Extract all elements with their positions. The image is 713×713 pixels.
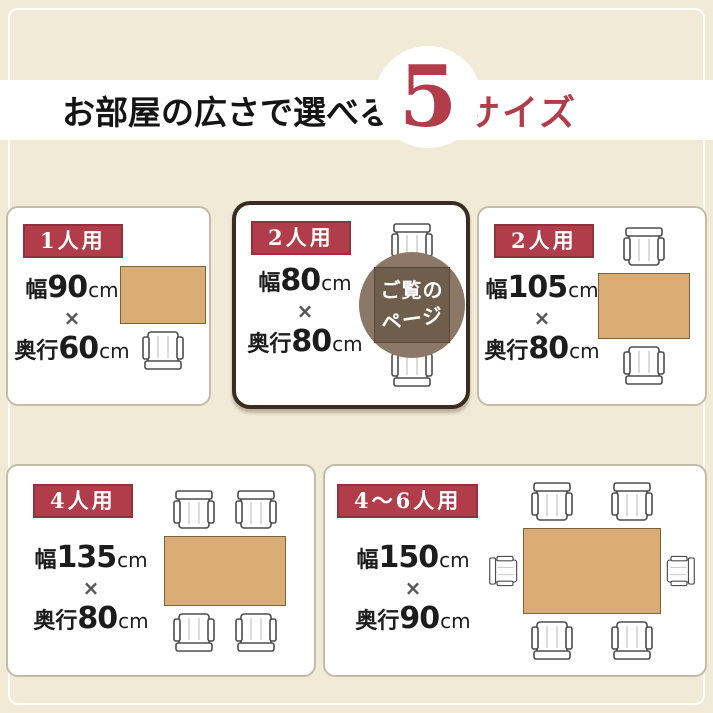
title-number-wrap: 5 bbox=[400, 68, 456, 152]
table-top-icon bbox=[523, 528, 661, 614]
depth-label: 奥行 bbox=[14, 333, 58, 365]
width-value: 80 bbox=[280, 263, 320, 298]
size-card-4to6person: 4〜6人用 幅150cm × 奥行90cm bbox=[323, 464, 707, 677]
depth-value: 60 bbox=[58, 331, 98, 366]
width-label: 幅 bbox=[258, 265, 280, 297]
chair-icon bbox=[141, 326, 185, 370]
width-value: 150 bbox=[378, 540, 438, 575]
chair-icon bbox=[657, 555, 701, 587]
chair-icon bbox=[530, 616, 574, 660]
depth-line: 奥行90cm bbox=[337, 601, 489, 636]
depth-value: 80 bbox=[291, 324, 331, 359]
current-page-line2: ページ bbox=[379, 301, 445, 338]
size-badge: 4人用 bbox=[33, 484, 133, 518]
chair-icon bbox=[172, 490, 216, 534]
unit-label: cm bbox=[117, 548, 147, 572]
width-line: 幅135cm bbox=[18, 540, 164, 575]
chair-icon bbox=[622, 341, 666, 385]
size-guide-banner: お部屋の広さで選べる 5 サイズ 1人用 幅90cm × 奥行60cm 2人用 bbox=[0, 0, 713, 713]
unit-label: cm bbox=[440, 609, 470, 633]
unit-label: cm bbox=[118, 609, 148, 633]
current-page-line1: ご覧の bbox=[381, 276, 444, 305]
page-title: お部屋の広さで選べる 5 サイズ bbox=[0, 80, 676, 140]
title-main-text: お部屋の広さで選べる bbox=[62, 86, 392, 134]
current-page-marker: ご覧の ページ bbox=[359, 252, 465, 358]
size-badge: 2人用 bbox=[494, 224, 594, 258]
title-number: 5 bbox=[399, 55, 457, 139]
depth-label: 奥行 bbox=[355, 603, 399, 635]
chair-icon bbox=[234, 608, 278, 652]
width-line: 幅90cm bbox=[12, 270, 132, 305]
chair-icon bbox=[530, 482, 574, 526]
width-value: 135 bbox=[56, 540, 116, 575]
chair-icon bbox=[610, 616, 654, 660]
depth-line: 奥行80cm bbox=[18, 601, 164, 636]
width-label: 幅 bbox=[34, 542, 56, 574]
depth-value: 90 bbox=[399, 601, 439, 636]
width-label: 幅 bbox=[485, 272, 507, 304]
depth-line: 奥行80cm bbox=[244, 324, 366, 359]
dimensions: 幅80cm × 奥行80cm bbox=[244, 263, 366, 359]
width-value: 105 bbox=[507, 270, 567, 305]
times-symbol: × bbox=[18, 576, 164, 600]
times-symbol: × bbox=[12, 306, 132, 330]
dimensions: 幅105cm × 奥行80cm bbox=[479, 270, 605, 366]
depth-value: 80 bbox=[77, 601, 117, 636]
layout-diagram: ご覧の ページ bbox=[366, 205, 458, 405]
chair-icon bbox=[483, 555, 527, 587]
width-line: 幅150cm bbox=[337, 540, 489, 575]
depth-line: 奥行80cm bbox=[479, 331, 605, 366]
table-top-icon bbox=[598, 273, 690, 339]
dimensions: 幅90cm × 奥行60cm bbox=[12, 270, 132, 366]
table-top-icon bbox=[120, 266, 206, 324]
depth-value: 80 bbox=[528, 331, 568, 366]
times-symbol: × bbox=[244, 299, 366, 323]
size-badge: 2人用 bbox=[251, 221, 351, 255]
table-top-icon bbox=[164, 536, 286, 606]
title-suffix-text: サイズ bbox=[464, 84, 577, 136]
layout-diagram bbox=[487, 466, 697, 675]
width-label: 幅 bbox=[25, 272, 47, 304]
chair-icon bbox=[234, 490, 278, 534]
depth-label: 奥行 bbox=[247, 326, 291, 358]
title-band: お部屋の広さで選べる 5 サイズ bbox=[0, 80, 713, 140]
unit-label: cm bbox=[321, 271, 351, 295]
size-card-4person: 4人用 幅135cm × 奥行80cm bbox=[6, 464, 316, 677]
size-badge: 1人用 bbox=[23, 224, 123, 258]
chair-icon bbox=[622, 227, 666, 271]
layout-diagram bbox=[148, 466, 302, 675]
layout-diagram bbox=[123, 208, 203, 404]
size-card-2person-current: 2人用 幅80cm × 奥行80cm ご覧の ページ bbox=[232, 201, 470, 409]
width-value: 90 bbox=[47, 270, 87, 305]
unit-label: cm bbox=[439, 548, 469, 572]
dimensions: 幅135cm × 奥行80cm bbox=[18, 540, 164, 636]
size-card-1person: 1人用 幅90cm × 奥行60cm bbox=[6, 206, 211, 406]
width-line: 幅105cm bbox=[479, 270, 605, 305]
unit-label: cm bbox=[88, 278, 118, 302]
depth-label: 奥行 bbox=[33, 603, 77, 635]
depth-label: 奥行 bbox=[484, 333, 528, 365]
size-card-2person-wide: 2人用 幅105cm × 奥行80cm bbox=[477, 206, 707, 406]
times-symbol: × bbox=[337, 576, 489, 600]
width-label: 幅 bbox=[356, 542, 378, 574]
width-line: 幅80cm bbox=[244, 263, 366, 298]
depth-line: 奥行60cm bbox=[12, 331, 132, 366]
unit-label: cm bbox=[332, 332, 362, 356]
dimensions: 幅150cm × 奥行90cm bbox=[337, 540, 489, 636]
chair-icon bbox=[610, 482, 654, 526]
chair-icon bbox=[172, 608, 216, 652]
times-symbol: × bbox=[479, 306, 605, 330]
layout-diagram bbox=[591, 208, 697, 404]
size-badge: 4〜6人用 bbox=[337, 484, 478, 518]
current-page-label: ご覧の ページ bbox=[374, 267, 450, 343]
